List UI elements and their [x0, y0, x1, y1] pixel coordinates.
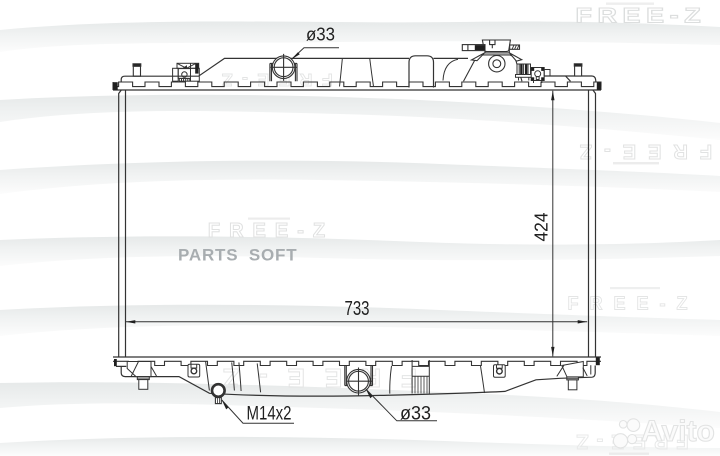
svg-text:733: 733	[345, 298, 370, 320]
svg-text:FREE-Z: FREE-Z	[568, 140, 712, 162]
svg-text:FREE-Z: FREE-Z	[203, 363, 417, 393]
svg-text:FREE-Z: FREE-Z	[568, 294, 699, 314]
svg-text:424: 424	[531, 213, 552, 242]
svg-text:FREE-Z: FREE-Z	[576, 4, 707, 28]
svg-text:ø33: ø33	[306, 25, 335, 45]
svg-text:FREE-Z: FREE-Z	[212, 70, 332, 90]
svg-text:ø33: ø33	[400, 403, 431, 425]
svg-text:Avito: Avito	[641, 415, 715, 448]
svg-text:PARTS SOFT: PARTS SOFT	[178, 245, 297, 264]
svg-text:M14x2: M14x2	[247, 403, 292, 425]
svg-text:FREE-Z: FREE-Z	[208, 220, 334, 242]
